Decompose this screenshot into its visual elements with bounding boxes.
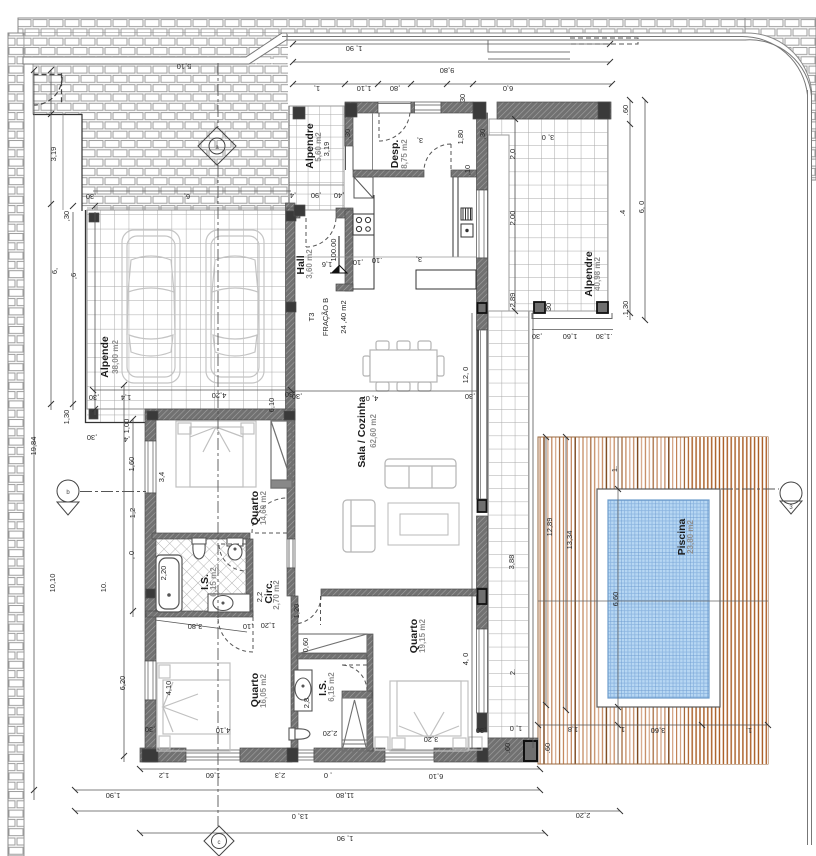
svg-text:30: 30 <box>458 94 467 102</box>
svg-text:,30: ,30 <box>86 192 96 201</box>
svg-text:1.: 1. <box>619 725 625 734</box>
svg-text:14,60 m2: 14,60 m2 <box>259 491 268 525</box>
svg-text:6, 0: 6, 0 <box>637 201 646 214</box>
svg-text:10,10: 10,10 <box>48 574 57 593</box>
svg-text:1,30: 1,30 <box>62 410 71 425</box>
svg-text:,4: ,4 <box>290 191 296 200</box>
svg-text:1,60: 1,60 <box>563 332 578 341</box>
svg-text:19,84: 19,84 <box>29 437 38 456</box>
svg-text:4,10: 4,10 <box>164 681 173 696</box>
svg-text:3,60 m2: 3,60 m2 <box>305 249 314 279</box>
svg-text:,10: ,10 <box>353 258 363 267</box>
svg-text:.1,30: .1,30 <box>596 332 613 341</box>
svg-text:3,60: 3,60 <box>651 726 666 735</box>
svg-text:13,34: 13,34 <box>565 531 574 550</box>
svg-text:1,: 1, <box>314 84 320 93</box>
svg-text:16,05 m2: 16,05 m2 <box>259 674 268 708</box>
svg-text:,30: ,30 <box>465 392 475 401</box>
svg-text:3,: 3, <box>416 255 422 264</box>
svg-text:3,80: 3,80 <box>188 622 203 631</box>
svg-text:3,: 3, <box>417 136 423 145</box>
svg-text:.10: .10 <box>372 256 382 265</box>
svg-text:2,20: 2,20 <box>576 811 591 820</box>
svg-text:30: 30 <box>544 303 553 311</box>
svg-text:10.: 10. <box>99 582 108 592</box>
svg-text:3, 0: 3, 0 <box>542 133 555 142</box>
svg-text:1, 0: 1, 0 <box>510 724 523 733</box>
svg-text:62,60 m2: 62,60 m2 <box>369 414 378 448</box>
svg-text:24 ,40 m2: 24 ,40 m2 <box>339 300 348 333</box>
svg-text:,4: ,4 <box>124 435 130 444</box>
svg-text:2,20: 2,20 <box>159 566 168 581</box>
svg-text:,10: ,10 <box>243 622 253 631</box>
svg-text:2,70 m2: 2,70 m2 <box>272 580 281 610</box>
svg-text:23,80 m2: 23,80 m2 <box>686 520 695 554</box>
svg-text:Sala / Cozinha: Sala / Cozinha <box>356 396 368 467</box>
svg-text:,80: ,80 <box>390 84 400 93</box>
svg-text:6,: 6, <box>50 268 59 274</box>
svg-text:,90: ,90 <box>311 191 321 200</box>
svg-text:.4: .4 <box>618 210 627 216</box>
svg-text:1, 90: 1, 90 <box>337 834 354 843</box>
svg-text:.1,30: .1,30 <box>621 301 630 318</box>
svg-text:9,80: 9,80 <box>440 66 455 75</box>
svg-text:3,19: 3,19 <box>322 142 331 157</box>
svg-text:4,20: 4,20 <box>212 391 227 400</box>
svg-text:, 0: , 0 <box>324 771 332 780</box>
svg-text:8,75 m2: 8,75 m2 <box>400 139 409 169</box>
svg-text:3,88: 3,88 <box>507 555 516 570</box>
svg-text:1, 90: 1, 90 <box>346 44 363 53</box>
svg-text:40,98 m2: 40,98 m2 <box>593 257 602 291</box>
svg-text:.60: .60 <box>621 105 630 115</box>
svg-text:1,2: 1,2 <box>159 771 169 780</box>
svg-text:2,3: 2,3 <box>275 771 285 780</box>
svg-text:6,15 m2: 6,15 m2 <box>327 672 336 702</box>
svg-text:4, 0: 4, 0 <box>461 653 470 666</box>
svg-text:2,8: 2,8 <box>302 698 311 708</box>
svg-text:1,8: 1,8 <box>568 725 578 734</box>
svg-text:FRAÇÃO B: FRAÇÃO B <box>321 298 330 336</box>
svg-text:6,0: 6,0 <box>503 84 513 93</box>
svg-text:,40: ,40 <box>334 191 344 200</box>
svg-text:1,20: 1,20 <box>261 621 276 630</box>
svg-text:1,4: 1,4 <box>121 393 131 402</box>
svg-text:.60: .60 <box>543 743 552 753</box>
svg-text:6,60: 6,60 <box>611 592 620 607</box>
svg-text:1.: 1. <box>610 466 619 472</box>
svg-text:1,00: 1,00 <box>122 419 131 434</box>
svg-text:1,2: 1,2 <box>128 508 137 518</box>
svg-text:19,15 m2: 19,15 m2 <box>418 619 427 653</box>
svg-text:,30: ,30 <box>478 129 487 139</box>
svg-text:, 0: , 0 <box>127 551 136 559</box>
svg-text:38,00 m2: 38,00 m2 <box>111 340 120 374</box>
svg-text:5,10: 5,10 <box>177 62 192 71</box>
svg-text:,30: ,30 <box>292 392 302 401</box>
svg-text:c: c <box>218 840 221 846</box>
svg-text:.60: .60 <box>503 743 512 753</box>
svg-text:1,60: 1,60 <box>206 771 221 780</box>
svg-text:12, 0: 12, 0 <box>461 367 470 384</box>
svg-text:12,89: 12,89 <box>545 518 554 537</box>
svg-text:2,00: 2,00 <box>508 211 517 226</box>
svg-text:3,20: 3,20 <box>424 735 439 744</box>
svg-text:,30: ,30 <box>87 433 97 442</box>
svg-text:T3: T3 <box>307 313 316 322</box>
svg-text:3,19: 3,19 <box>49 147 58 162</box>
svg-text:,30: ,30 <box>532 332 542 341</box>
svg-text:,6: ,6 <box>69 273 78 279</box>
svg-text:6,10: 6,10 <box>429 772 444 781</box>
svg-text:3,4: 3,4 <box>157 472 166 482</box>
svg-text:6,15 m2: 6,15 m2 <box>209 567 218 597</box>
svg-text:6,20: 6,20 <box>118 676 127 691</box>
svg-text:13, 0: 13, 0 <box>292 812 309 821</box>
svg-text:,30: ,30 <box>145 725 155 734</box>
svg-text:Alpende: Alpende <box>99 336 111 378</box>
svg-text:2,89: 2,89 <box>508 293 517 308</box>
svg-text:,30: ,30 <box>476 726 486 735</box>
svg-text:1.: 1. <box>746 726 752 735</box>
svg-text:,30: ,30 <box>89 393 99 402</box>
svg-text:1,20: 1,20 <box>292 604 301 619</box>
svg-text:100.00: 100.00 <box>329 239 338 262</box>
svg-text:1,90: 1,90 <box>106 791 121 800</box>
svg-text:1,60: 1,60 <box>127 457 136 472</box>
svg-text:6,: 6, <box>184 192 190 201</box>
svg-text:,30: ,30 <box>343 129 352 139</box>
svg-text:0,60: 0,60 <box>301 638 310 653</box>
svg-text:11,80: 11,80 <box>336 791 354 800</box>
svg-text:1,10: 1,10 <box>357 84 372 93</box>
svg-text:2,0: 2,0 <box>508 149 517 159</box>
svg-text:2,20: 2,20 <box>323 729 338 738</box>
svg-text:6,10: 6,10 <box>267 398 276 413</box>
svg-text:1,80: 1,80 <box>456 130 465 145</box>
svg-text:4,10: 4,10 <box>216 726 231 735</box>
svg-text:2.: 2. <box>508 669 517 675</box>
svg-text:,30: ,30 <box>62 211 71 221</box>
svg-text:,10: ,10 <box>463 165 472 175</box>
